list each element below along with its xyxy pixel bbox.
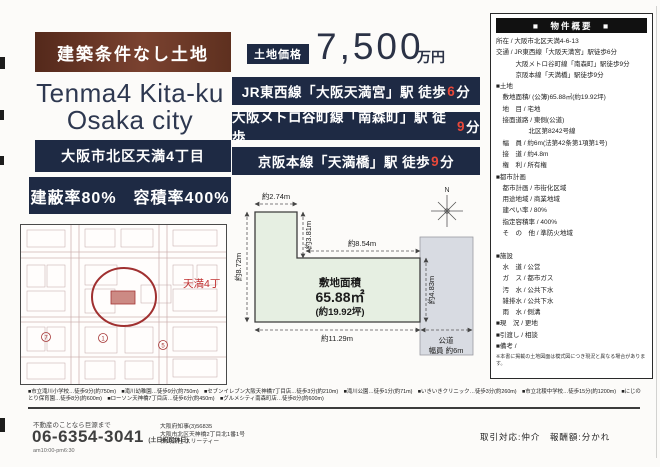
license-number: 大阪府知事(3)56835 <box>160 424 245 432</box>
location-map: 7 1 5 天満4丁 <box>20 224 227 385</box>
overview-row: 汚 水 / 公共下水 <box>496 285 647 296</box>
property-overview-panel: ■ 物件概要 ■ 所在 / 大阪市北区天満4-6-13交通 / JR東西線「大阪… <box>490 13 653 379</box>
overview-row: ■引渡し / 相談 <box>496 330 647 341</box>
scan-artifact <box>0 418 5 432</box>
overview-row: 幅 員 / 約6m(法第42条第1項第1号) <box>496 138 647 149</box>
overview-header: ■ 物件概要 ■ <box>496 18 647 33</box>
overview-row: ■施設 <box>496 251 647 262</box>
map-marker-number: 5 <box>161 344 165 350</box>
phone-number: 06-6354-3041 <box>32 427 144 446</box>
minutes-suffix: 分 <box>466 116 480 136</box>
overview-row: 用途地域 / 商業地域 <box>496 194 647 205</box>
access-line-text: 大阪メトロ谷町線「南森町」駅 徒歩 <box>232 106 456 146</box>
access-line-text: 京阪本線「天満橋」駅 徒歩 <box>258 151 430 171</box>
overview-row: 地 目 / 宅地 <box>496 104 647 115</box>
banner-no-building-conditions: 建築条件なし土地 <box>35 32 231 72</box>
overview-row: ■土地 <box>496 81 647 92</box>
deal-terms: 取引対応:仲介 報酬額:分かれ <box>480 431 610 443</box>
overview-body: 所在 / 大阪市北区天満4-6-13交通 / JR東西線「大阪天満宮」駅徒歩6分… <box>496 36 647 352</box>
plot-diagram: 約2.74m 約3.81m 約8.54m 約8.72m 約4.83m 約11.2… <box>232 183 490 388</box>
title-en-line1: Tenma4 Kita-ku <box>25 80 235 107</box>
coverage-ratio-badge: 建蔽率80% 容積率400% <box>29 177 231 214</box>
property-title-en: Tenma4 Kita-ku Osaka city <box>25 80 235 134</box>
dim-left: 約8.72m <box>233 253 243 281</box>
overview-row: ■都市計画 <box>496 172 647 183</box>
scan-artifact <box>0 110 4 120</box>
overview-row: 所在 / 大阪市北区天満4-6-13 <box>496 36 647 47</box>
land-plot-shape <box>255 212 420 322</box>
dim-bottom: 約11.29m <box>321 333 353 343</box>
price-amount: 7,500 <box>316 26 424 68</box>
overview-row: 接面道路 / 東側(公道) <box>496 115 647 126</box>
walk-minutes: 9 <box>430 154 440 169</box>
title-en-line2: Osaka city <box>25 107 235 134</box>
flyer-page: 建築条件なし土地 Tenma4 Kita-ku Osaka city 大阪市北区… <box>0 0 660 467</box>
address-badge: 大阪市北区天満4丁目 <box>35 140 231 172</box>
access-bar-jr-osakatemmangu: JR東西線「大阪天満宮」駅 徒歩6分 <box>232 77 480 105</box>
minutes-suffix: 分 <box>456 81 470 101</box>
overview-row: ■現 況 / 更地 <box>496 318 647 329</box>
dim-top: 約2.74m <box>262 191 290 201</box>
scan-artifact <box>0 57 5 69</box>
dim-notch: 約3.81m <box>303 221 313 249</box>
dim-right: 約4.83m <box>426 276 436 304</box>
overview-note: ※本書に掲載の土地図面は模式図につき現況と異なる場合があります。 <box>496 354 647 367</box>
access-bar-metro-minamimorimachi: 大阪メトロ谷町線「南森町」駅 徒歩9分 <box>232 112 480 140</box>
compass-icon: N <box>431 187 463 227</box>
minutes-suffix: 分 <box>440 151 454 171</box>
company-info-block: 大阪府知事(3)56835 大阪市北区天神橋2丁目北1番1号 株式会社 スリーテ… <box>160 424 245 447</box>
map-drawing: 7 1 5 天満4丁 <box>21 225 226 384</box>
company-name: 株式会社 スリーティー <box>160 439 245 447</box>
company-address: 大阪市北区天神橋2丁目北1番1号 <box>160 432 245 440</box>
map-district-label: 天満4丁 <box>183 278 220 290</box>
plot-area-value: 65.88㎡ <box>315 289 364 305</box>
banner-label: 建築条件なし土地 <box>57 40 209 65</box>
map-markers: 7 1 5 <box>42 333 168 350</box>
scan-artifact <box>0 156 4 165</box>
overview-row: 交通 / JR東西線「大阪天満宮」駅徒歩6分 <box>496 47 647 58</box>
overview-row: 京阪本線「天満橋」駅徒歩9分 <box>496 70 647 81</box>
overview-row <box>496 239 647 250</box>
price-label: 土地価格 <box>247 44 309 64</box>
facilities-line2: とり保育園…徒歩8分(約600m) ■ローソン天神橋7丁目店…徒歩6分(約450… <box>28 394 653 402</box>
access-line-text: JR東西線「大阪天満宮」駅 徒歩 <box>242 81 447 101</box>
overview-row: 雑排水 / 公共下水 <box>496 296 647 307</box>
overview-row: ■備考 / <box>496 341 647 352</box>
overview-row: 大阪メトロ谷町線「南森町」駅徒歩9分 <box>496 59 647 70</box>
overview-row: 接 道 / 約4.8m <box>496 149 647 160</box>
overview-row: 権 利 / 所有権 <box>496 160 647 171</box>
business-hours: am10:00-pm6:30 <box>33 448 75 454</box>
overview-row: 都市計画 / 市街化区域 <box>496 183 647 194</box>
overview-row: 雨 水 / 側溝 <box>496 307 647 318</box>
compass-n-label: N <box>444 187 449 194</box>
map-streets <box>21 225 226 384</box>
dim-mid: 約8.54m <box>348 238 376 248</box>
road-width-label: 幅員 約6m <box>428 345 463 355</box>
plot-area-label: 敷地面積 <box>319 276 361 289</box>
price-unit: 万円 <box>417 47 445 67</box>
walk-minutes: 9 <box>456 119 466 134</box>
overview-row: 建ぺい率 / 80% <box>496 205 647 216</box>
overview-row: 指定容積率 / 400% <box>496 217 647 228</box>
overview-row: 敷地面積/ (公簿)65.88㎡(約19.92坪) <box>496 92 647 103</box>
access-bar-keihan-temmabashi: 京阪本線「天満橋」駅 徒歩9分 <box>232 147 480 175</box>
overview-row: ガ ス / 都市ガス <box>496 273 647 284</box>
overview-row: 北区第8242号線 <box>496 126 647 137</box>
plot-area-tsubo: (約19.92坪) <box>315 306 364 318</box>
overview-row: そ の 他 / 準防火地域 <box>496 228 647 239</box>
scan-edge-line <box>656 6 657 458</box>
road-label: 公道 <box>439 335 454 345</box>
footer-divider <box>28 407 640 409</box>
subject-parcel <box>111 291 135 304</box>
map-marker-number: 7 <box>44 336 48 342</box>
plot-diagram-drawing: 約2.74m 約3.81m 約8.54m 約8.72m 約4.83m 約11.2… <box>232 183 490 388</box>
walk-minutes: 6 <box>446 84 456 99</box>
map-marker-number: 1 <box>101 337 105 343</box>
overview-row: 水 道 / 公営 <box>496 262 647 273</box>
